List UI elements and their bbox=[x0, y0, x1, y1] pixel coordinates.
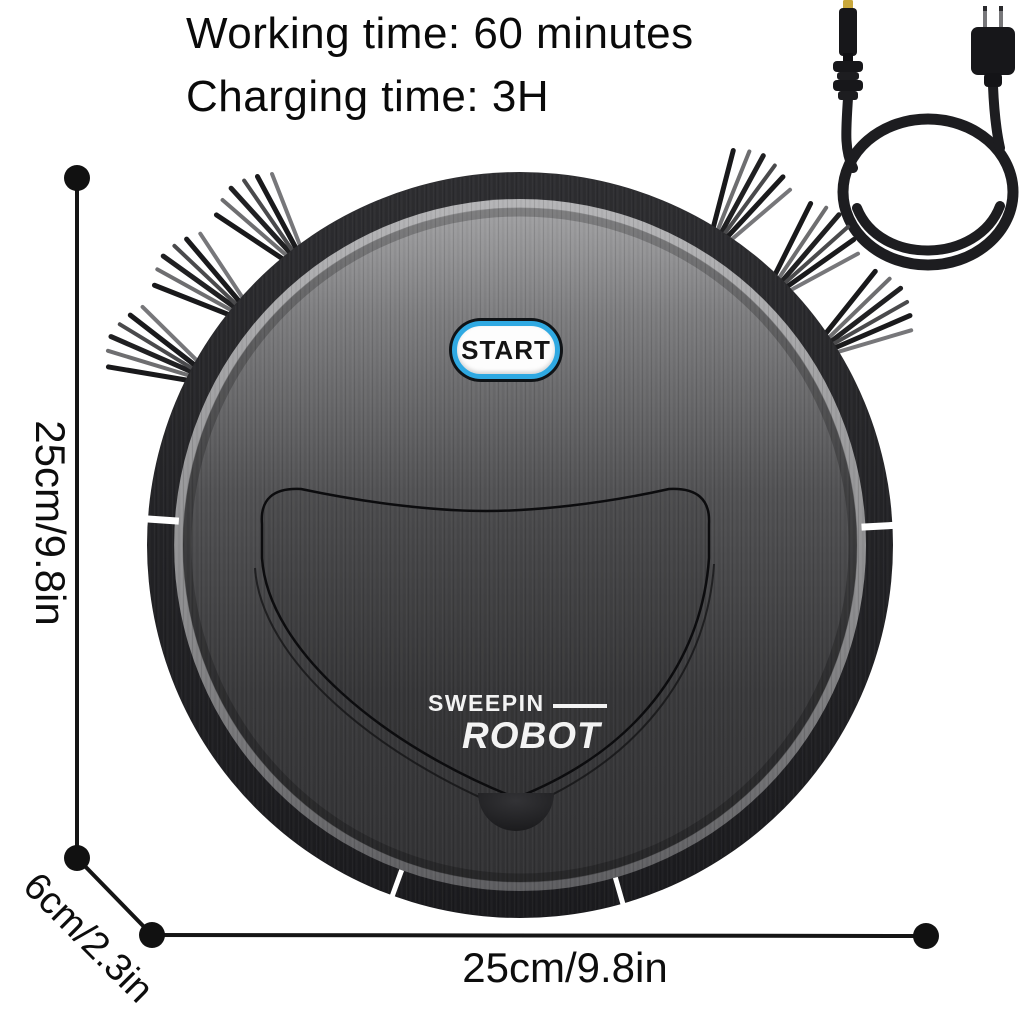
robot-vacuum bbox=[98, 140, 923, 918]
spec-text-block: Working time: 60 minutes Charging time: … bbox=[186, 2, 694, 128]
endpoint-dot bbox=[64, 165, 90, 191]
height-dimension-label: 25cm/9.8in bbox=[21, 383, 79, 663]
start-button: START bbox=[452, 321, 560, 379]
product-image: Working time: 60 minutes Charging time: … bbox=[0, 0, 1024, 1024]
charging-cable-illustration bbox=[833, 0, 1015, 265]
brand-text: SWEEPIN ROBOT bbox=[428, 690, 607, 757]
width-dimension-label: 25cm/9.8in bbox=[425, 944, 705, 992]
start-button-label: START bbox=[461, 335, 551, 366]
usb-plug-icon bbox=[971, 6, 1015, 87]
endpoint-dot bbox=[64, 845, 90, 871]
product-artwork bbox=[0, 0, 1024, 1024]
dc-plug-icon bbox=[833, 0, 863, 100]
brand-line1: SWEEPIN bbox=[428, 690, 545, 716]
working-time-text: Working time: 60 minutes bbox=[186, 2, 694, 65]
endpoint-dot bbox=[913, 923, 939, 949]
cable-cord bbox=[843, 86, 1013, 265]
width-dimension-line bbox=[152, 935, 926, 936]
brand-line2: ROBOT bbox=[462, 715, 607, 757]
brand-underline bbox=[553, 704, 607, 708]
endpoint-dot bbox=[139, 922, 165, 948]
charging-time-text: Charging time: 3H bbox=[186, 65, 694, 128]
